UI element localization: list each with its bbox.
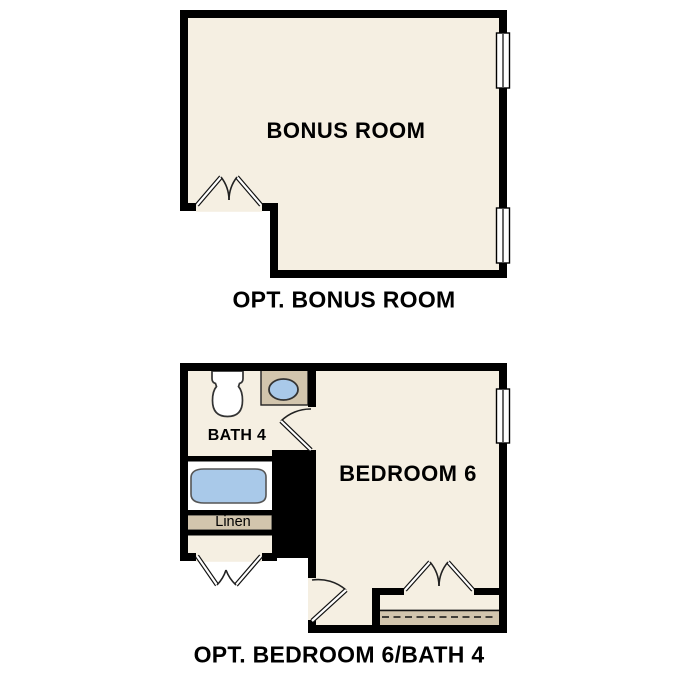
bonus-room-floor <box>184 14 503 274</box>
bonus-room-window-icon-top <box>497 33 510 88</box>
bath4-entry-opening <box>196 552 262 561</box>
bedroom6-window-icon <box>497 389 510 443</box>
bonus-room-plan <box>184 14 510 274</box>
bonus-room-door-opening <box>196 202 262 211</box>
floor-plan-sheet: BONUS ROOM OPT. BONUS ROOM BATH 4 BEDROO… <box>0 0 687 687</box>
closet-opening <box>404 587 474 596</box>
sink-icon <box>269 379 298 400</box>
bonus-room-caption: OPT. BONUS ROOM <box>232 289 455 312</box>
floor-plan-drawing <box>0 0 687 687</box>
bathtub-icon <box>191 469 266 503</box>
bedroom6-bath4-plan <box>180 363 510 633</box>
bedroom6-bath4-caption: OPT. BEDROOM 6/BATH 4 <box>194 644 485 667</box>
closet-shelf <box>380 611 499 625</box>
linen-label: Linen <box>215 515 250 530</box>
bonus-room-window-icon-bottom <box>497 208 510 263</box>
toilet-icon <box>212 371 243 417</box>
bonus-room-label: BONUS ROOM <box>267 120 426 142</box>
bath4-label: BATH 4 <box>208 428 266 444</box>
bedroom6-label: BEDROOM 6 <box>339 463 477 485</box>
